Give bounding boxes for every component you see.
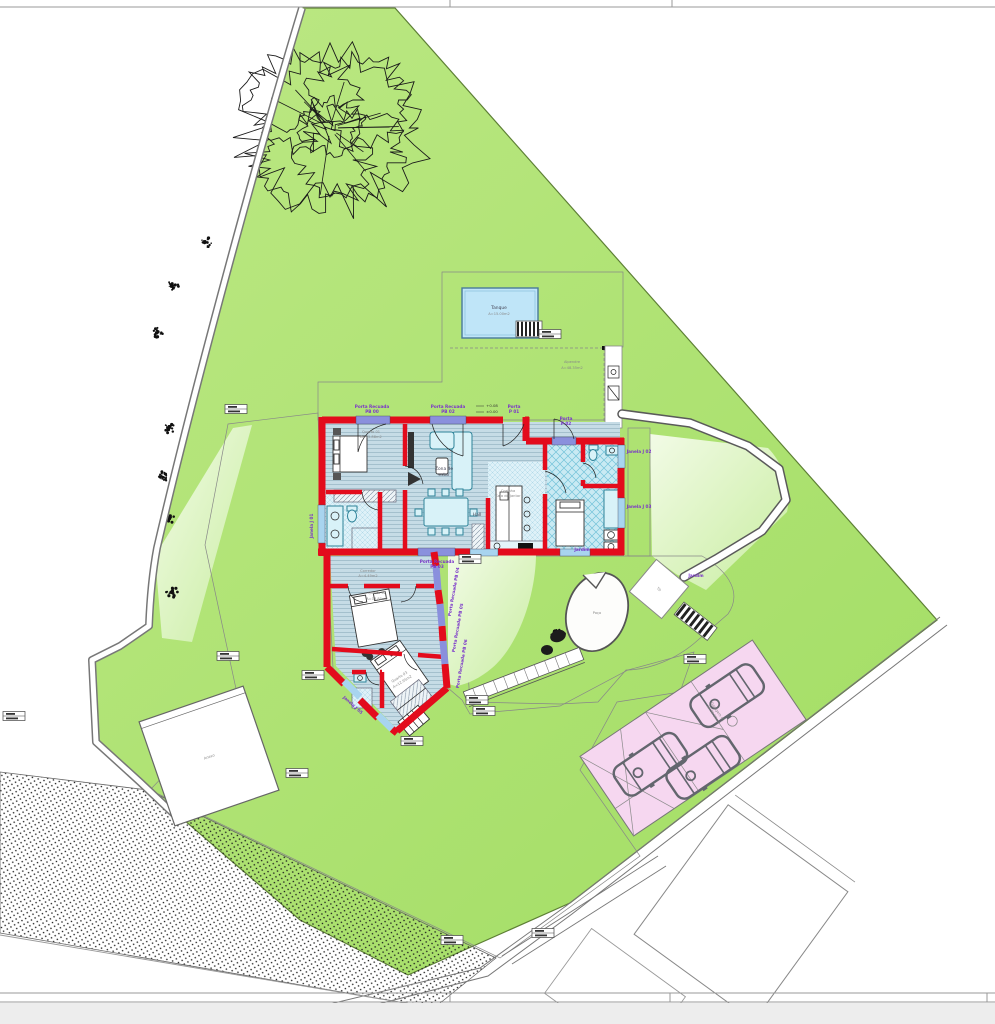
level-annotation-box xyxy=(532,929,554,938)
bush-dot xyxy=(158,476,160,478)
bush-dot xyxy=(170,285,173,288)
level-annotation-box xyxy=(539,330,561,339)
level-annotation-box xyxy=(302,671,324,680)
annotation-box-text-mark xyxy=(220,658,232,660)
garden-label-2: Jardim xyxy=(687,573,704,578)
bush-dot xyxy=(153,330,155,332)
site-plan-drawing: Tanque A=15.00m2 Alpendre A=48.35m2 Poço… xyxy=(0,0,995,1024)
annotation-box-text-mark xyxy=(687,661,699,663)
nightstand-2 xyxy=(333,473,341,480)
tv-unit xyxy=(408,432,414,468)
room-label-q1: Quarto 01 xyxy=(362,430,380,434)
room-label-corridor-area: A=4.49m2 xyxy=(358,574,377,578)
bush-dot xyxy=(161,478,162,479)
bush-dot xyxy=(207,245,210,248)
door-band-pb00 xyxy=(356,416,390,424)
level-annotation-box xyxy=(286,769,308,778)
annotation-box-text-mark xyxy=(462,561,474,563)
bush-dot xyxy=(168,592,170,594)
bush-dot xyxy=(169,286,170,287)
door-band-pb02 xyxy=(430,416,466,424)
bush-dot xyxy=(176,591,179,594)
room-label-living1: Zona de xyxy=(435,466,453,472)
bush-dot xyxy=(172,430,174,432)
step-stripe xyxy=(529,322,531,336)
annotation-box-text-mark xyxy=(6,718,18,720)
annotation-box-text-mark xyxy=(305,677,317,679)
bush-dot xyxy=(169,515,172,518)
room-label-hall: Hall xyxy=(473,512,481,518)
neighbour-building xyxy=(634,795,855,1021)
door-code-p01: P 01 xyxy=(509,409,519,414)
bush-dot xyxy=(156,335,159,338)
bush-dot xyxy=(207,238,209,240)
sofa xyxy=(452,432,472,490)
bush-dot xyxy=(210,242,212,244)
house: Quarto 01 A=15.88m2 Zona de estar Hall C… xyxy=(318,416,625,578)
bush xyxy=(168,281,180,291)
bed-q1-pillow xyxy=(334,440,339,450)
bush-dot xyxy=(167,594,170,597)
bush-dot xyxy=(174,587,177,590)
bush-dot xyxy=(171,589,174,592)
level-up-label: +0.08 xyxy=(486,403,498,408)
bed-q1-pillow2 xyxy=(334,454,339,464)
window-j02 xyxy=(618,445,625,468)
window-j03 xyxy=(618,498,625,528)
step-stripe xyxy=(525,322,527,336)
dining-chairs-part xyxy=(428,528,435,535)
bush-dot xyxy=(165,474,167,476)
bush xyxy=(201,236,212,248)
bush-dot xyxy=(166,431,169,434)
dining-chairs-part xyxy=(456,489,463,496)
room-label-kitchen2: Sala de Jantar xyxy=(495,494,521,498)
annotation-box-text-mark xyxy=(535,930,544,932)
annotation-box-text-mark xyxy=(444,937,453,939)
annotation-box-text-mark xyxy=(687,656,696,658)
bush-dot xyxy=(174,284,177,287)
annotation-box-text-mark xyxy=(228,406,237,408)
bush-dot xyxy=(168,425,170,427)
sofa-2 xyxy=(430,432,454,449)
bush-dot xyxy=(173,595,175,597)
dining-chairs-part xyxy=(442,528,449,535)
level-annotation-box xyxy=(473,707,495,716)
bush-dot xyxy=(168,281,170,283)
room-label-q1-area: A=15.88m2 xyxy=(360,435,382,439)
dining-chairs-part xyxy=(456,528,463,535)
shower xyxy=(352,528,379,550)
annotation-box-text-mark xyxy=(542,331,551,333)
bush xyxy=(158,470,167,481)
dining-chairs-part xyxy=(415,509,422,516)
site-plan-sheet: Tanque A=15.00m2 Alpendre A=48.35m2 Poço… xyxy=(0,0,995,1024)
well-label: Poço xyxy=(593,611,601,615)
frame-top-ticks xyxy=(450,0,672,7)
step-stripe xyxy=(521,322,523,336)
annotation-box-text-mark xyxy=(469,702,481,704)
bush-dot xyxy=(165,476,167,478)
hall-closet xyxy=(472,524,484,550)
bush-dot xyxy=(166,425,167,426)
pool-area-label: A=15.00m2 xyxy=(488,312,510,316)
level-annotation-box xyxy=(459,555,481,564)
bush-dot xyxy=(174,287,175,288)
annotation-box-text-mark xyxy=(289,775,301,777)
bush-dot xyxy=(164,474,166,476)
annotation-box-text-mark xyxy=(404,738,413,740)
annotation-labels-part: Janela J 01 xyxy=(309,514,314,540)
porch-area-label: A=48.35m2 xyxy=(561,366,583,370)
bush-dot xyxy=(172,515,175,518)
bush xyxy=(153,327,164,339)
bush-dot xyxy=(171,587,174,590)
toilet xyxy=(348,510,357,522)
annotation-box-text-mark xyxy=(289,770,298,772)
door-band-p02 xyxy=(552,437,576,445)
bush-dot xyxy=(164,429,167,432)
bush-dot xyxy=(173,592,174,593)
shrub-dark-2 xyxy=(541,645,553,655)
door-code-pb02: PB 02 xyxy=(441,409,455,414)
bush-dot xyxy=(171,521,174,524)
garden-label: Jardim xyxy=(573,547,590,552)
pool-label: Tanque xyxy=(490,305,507,311)
step-stripe xyxy=(533,322,535,336)
room-label-living2: estar xyxy=(438,472,449,478)
wc-sink xyxy=(606,446,618,455)
porch-label: Alpendre xyxy=(564,360,581,364)
bush-dot xyxy=(171,289,173,291)
level-annotation-box xyxy=(401,737,423,746)
room-label-q2-area: A=13.85m2 xyxy=(366,597,388,601)
annotation-box-text-mark xyxy=(6,713,15,715)
window-j01 xyxy=(318,505,325,543)
bush-dot xyxy=(155,331,157,333)
bush-dot xyxy=(160,331,162,333)
annotation-box-text-mark xyxy=(404,743,416,745)
bush-dot xyxy=(165,591,167,593)
level-annotation-box xyxy=(684,655,706,664)
window-label-j01: Janela J 01 xyxy=(309,514,314,540)
bush-dot xyxy=(201,239,203,241)
room-label-corridor: Corredor xyxy=(360,569,376,573)
door-code-p02: P 02 xyxy=(561,421,571,426)
annotation-box-text-mark xyxy=(476,708,485,710)
door-code-pb03: PB 03 xyxy=(430,564,444,569)
window-label-j02: Janela J 02 xyxy=(626,449,652,454)
wing-vanity xyxy=(354,674,366,682)
annotation-box-text-mark xyxy=(220,653,229,655)
annotation-box-text-mark xyxy=(535,935,547,937)
level-zero-label: ±0.00 xyxy=(486,409,498,414)
wc-toilet xyxy=(589,450,597,461)
bush-dot xyxy=(162,478,164,480)
annotation-box-text-mark xyxy=(228,411,240,413)
bush-dot xyxy=(171,427,173,429)
dining-chairs-part xyxy=(442,489,449,496)
annotation-box-text-mark xyxy=(542,336,554,338)
bush-dot xyxy=(159,473,161,475)
bush-dot xyxy=(165,479,167,481)
pool-steps xyxy=(516,321,542,337)
dining-table xyxy=(424,498,468,526)
bush-dot xyxy=(177,285,180,288)
level-annotation-box xyxy=(225,405,247,414)
frame-bottom-band xyxy=(0,1003,995,1024)
annotation-box-text-mark xyxy=(305,672,314,674)
step-stripe xyxy=(517,322,519,336)
bush-dot xyxy=(167,428,169,430)
annotation-box-text-mark xyxy=(469,697,478,699)
bush xyxy=(164,423,174,434)
level-annotation-box xyxy=(3,712,25,721)
bed-annex-pillow xyxy=(560,502,580,508)
bush-dot xyxy=(204,241,206,243)
level-annotation-box xyxy=(441,936,463,945)
neighbour-building-outline xyxy=(634,805,848,1021)
level-annotation-box xyxy=(466,696,488,705)
dining-chairs-part xyxy=(428,489,435,496)
window-label-j03: Janela J 03 xyxy=(626,504,652,509)
level-annotation-box xyxy=(217,652,239,661)
room-label-kitchen1: Cozinha xyxy=(501,489,515,493)
annotation-box-text-mark xyxy=(462,556,471,558)
annotation-box-text-mark xyxy=(476,713,488,715)
room-label-q2: Quarto 02 xyxy=(368,591,386,595)
bush-dot xyxy=(156,327,158,329)
annotation-box-text-mark xyxy=(444,942,456,944)
nightstand xyxy=(333,428,341,435)
door-code-pb00: PB 00 xyxy=(365,409,379,414)
